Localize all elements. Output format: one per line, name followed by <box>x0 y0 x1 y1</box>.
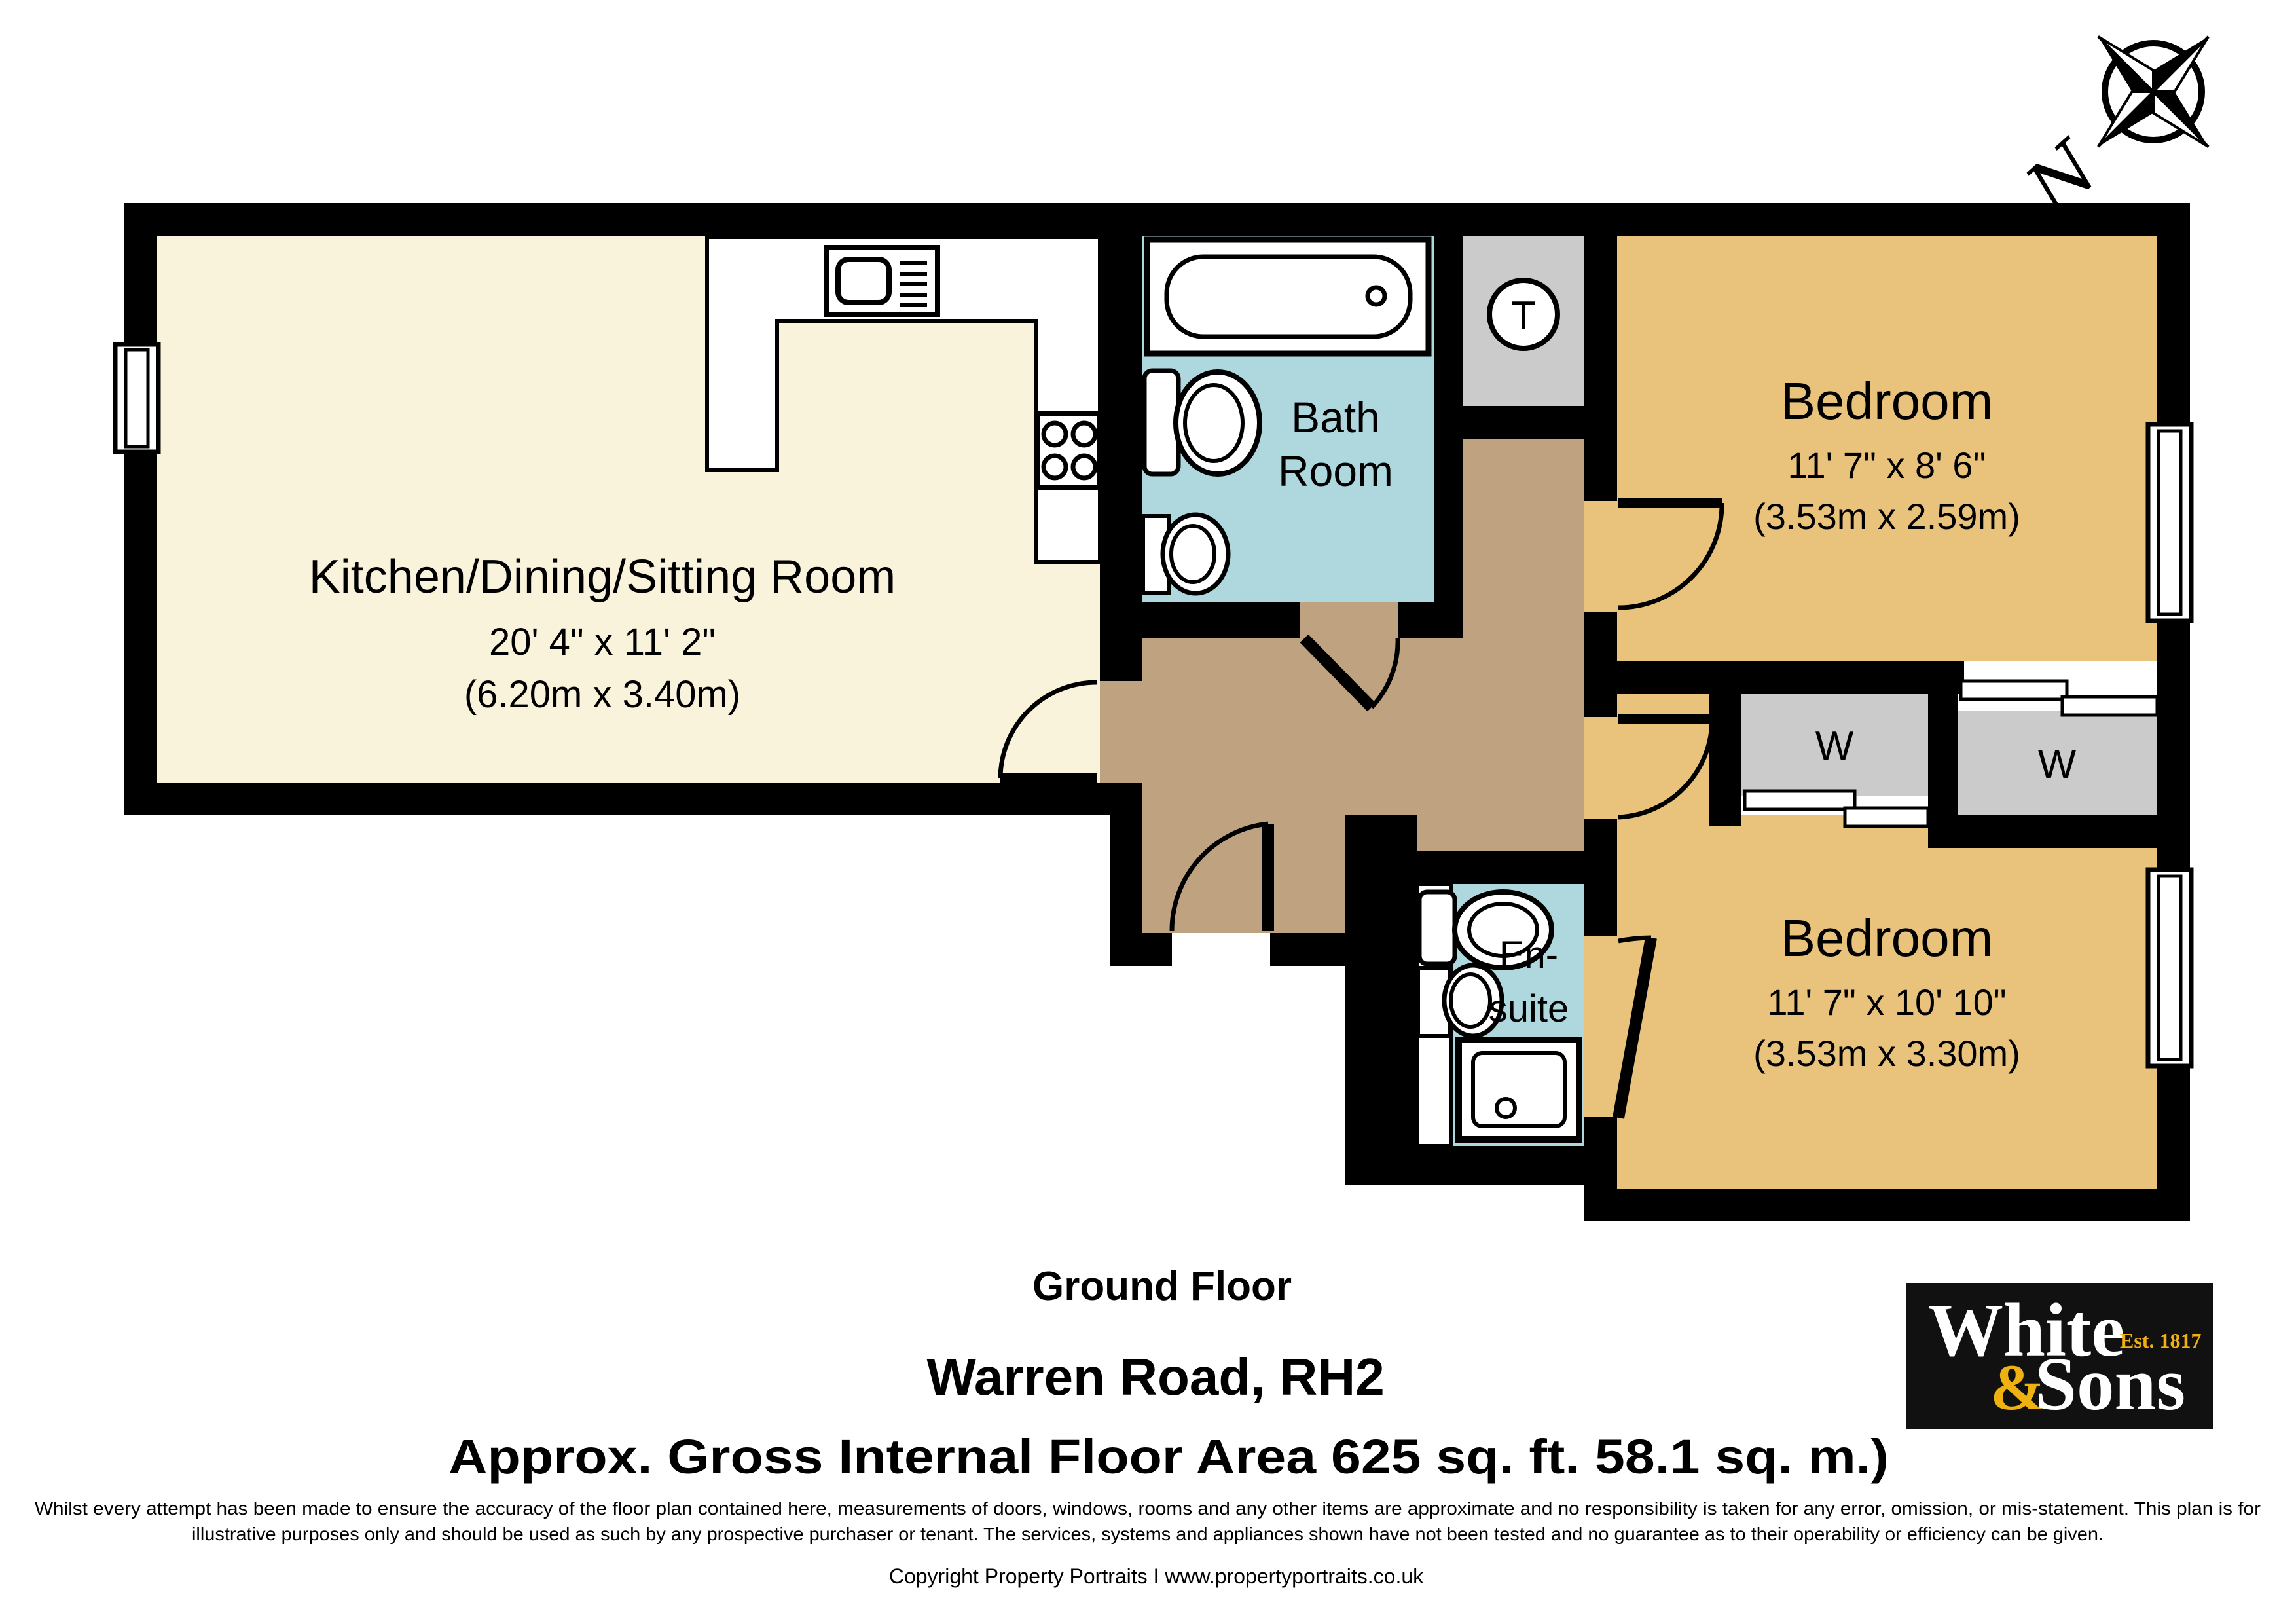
bedroom-top-dims-metric: (3.53m x 2.59m) <box>1753 496 2020 537</box>
bedroom-top-window-icon <box>2148 424 2191 621</box>
wall-segment <box>1110 933 1172 966</box>
wall-segment <box>124 203 2190 236</box>
address-title: Warren Road, RH2 <box>926 1348 1384 1406</box>
bedroom-top-dims-imperial: 11' 7" x 8' 6" <box>1788 445 1986 486</box>
bedroom-bottom-label: Bedroom <box>1781 909 1994 967</box>
copyright-line: Copyright Property Portraits I www.prope… <box>889 1564 1424 1588</box>
tank-label: T <box>1511 293 1536 339</box>
bedroom-top-door-opening <box>1584 501 1617 612</box>
wall-segment <box>1398 602 1434 638</box>
ensuite-label-line1: En- <box>1499 934 1558 976</box>
wardrobe-right-label: W <box>2038 742 2077 787</box>
wall-segment <box>2157 203 2190 1221</box>
hall-floor-main <box>1142 638 1584 815</box>
slider-bar <box>1745 791 1855 809</box>
wall-segment <box>1388 851 1584 884</box>
bedroom-bottom-dims-imperial: 11' 7" x 10' 10" <box>1767 982 2006 1023</box>
agent-logo: White Est. 1817 & Sons <box>1906 1283 2213 1429</box>
wall-segment <box>1928 815 2190 848</box>
basin-icon <box>1143 515 1228 593</box>
floor-area-line: Approx. Gross Internal Floor Area 625 sq… <box>448 1430 1889 1484</box>
hall-floor-upper <box>1463 439 1584 638</box>
slider-bar <box>1961 681 2067 699</box>
floor-title: Ground Floor <box>1032 1264 1292 1309</box>
slider-bar <box>2062 697 2157 715</box>
wall-segment <box>1709 694 1741 826</box>
disclaimer-line2: illustrative purposes only and should be… <box>192 1524 2104 1544</box>
kitchen-door-opening <box>1100 681 1142 783</box>
wall-segment <box>1434 236 1463 638</box>
wall-segment <box>1388 1146 1584 1185</box>
disclaimer-line1: Whilst every attempt has been made to en… <box>35 1498 2261 1519</box>
kitchen-sink-icon <box>826 248 938 314</box>
slider-bar <box>1845 808 1928 826</box>
tank-cupboard: T <box>1489 280 1558 348</box>
floorplan-page: T <box>0 0 2296 1624</box>
wall-segment <box>1584 661 1964 694</box>
ensuite-door-opening <box>1584 936 1617 1116</box>
toilet-icon <box>1144 371 1260 474</box>
hob-icon <box>1038 414 1099 487</box>
wall-segment <box>1463 406 1584 439</box>
wall-segment <box>124 783 1142 815</box>
bedroom-bottom-door-opening <box>1584 717 1617 819</box>
wall-segment <box>1100 236 1142 681</box>
bathroom-label-line2: Room <box>1278 447 1393 495</box>
wall-segment <box>1584 819 1617 936</box>
bathtub-icon <box>1147 240 1429 354</box>
wall-segment <box>1584 1189 2190 1221</box>
bedroom-top-label: Bedroom <box>1781 372 1994 430</box>
shower-tray-icon <box>1459 1040 1579 1139</box>
wall-segment <box>124 203 157 815</box>
ensuite-label-line2: suite <box>1489 987 1569 1030</box>
bedroom-link-floor <box>1617 694 1709 815</box>
bathroom-label-line1: Bath <box>1291 393 1380 441</box>
kitchen-dims-metric: (6.20m x 3.40m) <box>464 673 740 716</box>
wall-segment <box>1584 236 1617 501</box>
logo-word-sons: Sons <box>2035 1342 2185 1426</box>
floorplan-canvas: T <box>0 0 2296 1624</box>
wall-segment <box>1270 933 1345 966</box>
bedroom-bottom-window-icon <box>2148 870 2191 1066</box>
wall-segment <box>1142 602 1300 638</box>
wardrobe-left-label: W <box>1815 724 1854 769</box>
bathroom-door-opening <box>1300 602 1398 638</box>
kitchen-label: Kitchen/Dining/Sitting Room <box>309 551 896 603</box>
bedroom-bottom-dims-metric: (3.53m x 3.30m) <box>1753 1033 2020 1074</box>
kitchen-window-icon <box>115 344 158 452</box>
kitchen-dims-imperial: 20' 4" x 11' 2" <box>489 621 716 663</box>
